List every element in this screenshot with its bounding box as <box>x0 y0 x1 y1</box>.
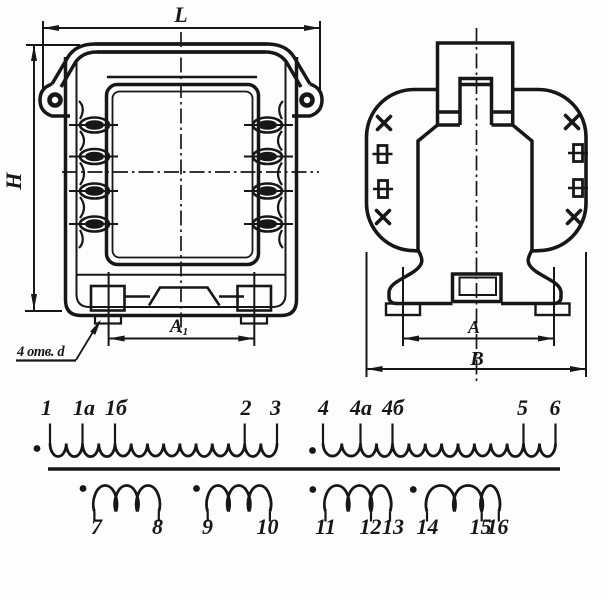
svg-text:3: 3 <box>269 395 281 420</box>
svg-text:1: 1 <box>41 395 52 420</box>
svg-text:1б: 1б <box>105 395 128 420</box>
svg-text:4: 4 <box>317 395 329 420</box>
svg-text:8: 8 <box>152 514 163 539</box>
svg-text:В: В <box>469 348 483 370</box>
svg-text:L: L <box>173 2 187 27</box>
svg-text:7: 7 <box>91 514 103 539</box>
svg-text:H: H <box>1 172 26 191</box>
svg-text:4a: 4a <box>349 395 372 420</box>
svg-text:14: 14 <box>417 514 439 539</box>
svg-text:10: 10 <box>257 514 279 539</box>
svg-text:16: 16 <box>487 514 509 539</box>
svg-text:11: 11 <box>315 514 336 539</box>
svg-text:A1: A1 <box>169 316 188 338</box>
svg-text:1a: 1a <box>73 395 95 420</box>
svg-text:6: 6 <box>550 395 561 420</box>
svg-text:13: 13 <box>382 514 404 539</box>
svg-text:9: 9 <box>202 514 213 539</box>
svg-text:2: 2 <box>240 395 252 420</box>
svg-text:12: 12 <box>360 514 382 539</box>
svg-text:5: 5 <box>517 395 528 420</box>
svg-text:4б: 4б <box>381 395 405 420</box>
svg-text:4 отв. d: 4 отв. d <box>16 344 65 360</box>
svg-text:A: A <box>467 317 480 337</box>
